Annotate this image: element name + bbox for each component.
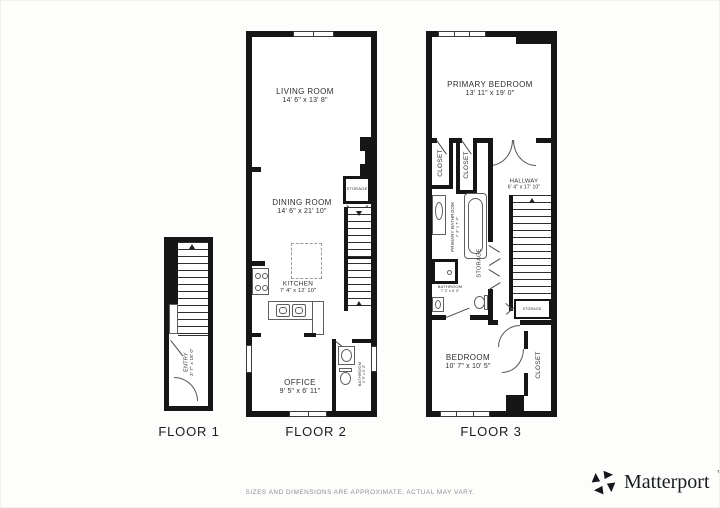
- room-name: PRIMARY BEDROOM: [447, 80, 533, 90]
- wall: [506, 395, 524, 411]
- door-swing-line: [489, 258, 501, 266]
- wall: [524, 373, 528, 396]
- brand-trademark: ™: [717, 469, 720, 479]
- door-arc: [498, 325, 520, 347]
- wall: [456, 138, 460, 194]
- room-dims: 7' 3" x 7' 4": [455, 202, 460, 252]
- window: [438, 31, 486, 37]
- room-name: DINING ROOM: [272, 198, 332, 208]
- area-rug: [291, 243, 322, 279]
- room-dims: 10' 7" x 10' 5": [445, 363, 490, 372]
- floor3-plan: PRIMARY BEDROOM 13' 11" x 19' 0" CLOSET …: [426, 31, 557, 417]
- room-name: CLOSET: [462, 151, 470, 179]
- stairs-direction-arrow: [356, 301, 362, 306]
- window: [289, 411, 327, 417]
- room-name: ENTRY: [183, 348, 189, 376]
- room-name: CLOSET: [436, 149, 444, 177]
- door-swing-line: [170, 340, 183, 356]
- wall: [169, 242, 178, 304]
- sink-fixture: [432, 297, 444, 312]
- stairs-direction-arrow: [356, 211, 362, 216]
- room-name: STORAGE: [476, 248, 483, 277]
- sink-fixture: [276, 304, 290, 317]
- burner-icon: [255, 285, 261, 291]
- room-name: STORAGE: [523, 307, 542, 311]
- shower-drain: [447, 270, 452, 275]
- burner-icon: [262, 285, 268, 291]
- room-dims: 7' 2" x 6' 3": [438, 289, 462, 293]
- room-dims: 3' 7" x 18' 0": [189, 348, 195, 376]
- matterport-logo: Matterport ™: [590, 469, 720, 496]
- window: [371, 346, 377, 372]
- room-name: PRIMARY BATHROOM: [450, 202, 455, 252]
- burner-icon: [262, 273, 268, 279]
- window: [293, 31, 334, 37]
- window: [246, 345, 252, 373]
- floor1-label: FLOOR 1: [158, 424, 219, 439]
- room-name: LIVING ROOM: [276, 87, 334, 97]
- wall: [488, 320, 498, 325]
- wall: [332, 339, 336, 411]
- stairs: [348, 207, 371, 311]
- stove-fixture: [252, 268, 269, 295]
- stairs-direction-arrow: [529, 198, 535, 203]
- room-dims: 9' 5" x 6' 11": [280, 388, 321, 397]
- wall: [536, 138, 551, 143]
- room-name: HALLWAY: [508, 178, 541, 185]
- brand-wordmark: Matterport: [624, 469, 710, 495]
- wall: [516, 37, 551, 44]
- wall: [432, 315, 446, 320]
- wall: [473, 138, 477, 194]
- stairs-direction-arrow: [189, 244, 195, 249]
- room-dims: 7' 4" x 12' 10": [280, 287, 316, 294]
- landing-shelf: [169, 304, 178, 334]
- floorplan-canvas: ENTRY 3' 7" x 18' 0" FLOOR 1 LIVING ROOM…: [0, 0, 720, 508]
- shower-fixture: [432, 259, 458, 284]
- sink-basin: [279, 307, 287, 314]
- floor1-plan: ENTRY 3' 7" x 18' 0": [164, 237, 213, 411]
- stairs: [178, 242, 208, 336]
- room-name: STORAGE: [347, 187, 368, 192]
- sink-fixture: [432, 195, 446, 235]
- door-swing-line: [488, 269, 500, 277]
- toilet-tank: [484, 295, 488, 310]
- door-swing-line: [488, 245, 500, 253]
- burner-icon: [255, 273, 261, 279]
- room-dims: 14' 6" x 13' 8": [276, 97, 334, 106]
- floor2-plan: LIVING ROOM 14' 6" x 13' 8" STORAGE DINI…: [246, 31, 377, 417]
- wall: [524, 331, 528, 349]
- wall: [252, 333, 261, 337]
- door-swing-line: [446, 308, 470, 318]
- wall: [520, 320, 551, 325]
- room-dims: 13' 11" x 19' 0": [447, 90, 533, 99]
- floor3-label: FLOOR 3: [460, 424, 521, 439]
- sink-fixture: [338, 346, 355, 365]
- room-dims: 14' 6" x 21' 10": [272, 208, 332, 217]
- wall: [252, 167, 261, 172]
- double-door-arc: [513, 140, 536, 166]
- sink-fixture: [292, 304, 306, 317]
- stairs: [513, 195, 551, 299]
- tub-basin: [468, 198, 483, 254]
- door-swing-line: [489, 282, 501, 290]
- toilet-fixture: [340, 372, 351, 385]
- stair-landing: [348, 257, 371, 259]
- wall: [352, 339, 371, 343]
- double-door-arc: [490, 140, 513, 166]
- room-name: OFFICE: [280, 378, 321, 388]
- room-dims: 4' 9" x 5' 3": [362, 362, 366, 386]
- wall: [252, 261, 265, 266]
- wall: [488, 138, 493, 242]
- wall: [304, 333, 316, 337]
- kitchen-counter: [268, 301, 318, 320]
- window: [440, 411, 490, 417]
- fireplace-slot: [360, 151, 365, 164]
- sink-basin: [341, 349, 352, 362]
- door-arc: [174, 377, 198, 401]
- sink-basin: [295, 307, 303, 314]
- matterport-pinwheel-icon: [590, 469, 617, 496]
- wall: [449, 138, 453, 188]
- floor2-label: FLOOR 2: [285, 424, 346, 439]
- sink-basin: [435, 202, 443, 220]
- kitchen-counter: [312, 301, 324, 335]
- door-arc: [502, 349, 524, 373]
- room-name: CLOSET: [534, 351, 542, 379]
- room-name: BEDROOM: [445, 353, 490, 363]
- wall: [432, 185, 453, 189]
- room-name: KITCHEN: [280, 280, 316, 288]
- sink-basin: [435, 300, 441, 309]
- room-dims: 6' 4" x 17' 10": [508, 184, 541, 190]
